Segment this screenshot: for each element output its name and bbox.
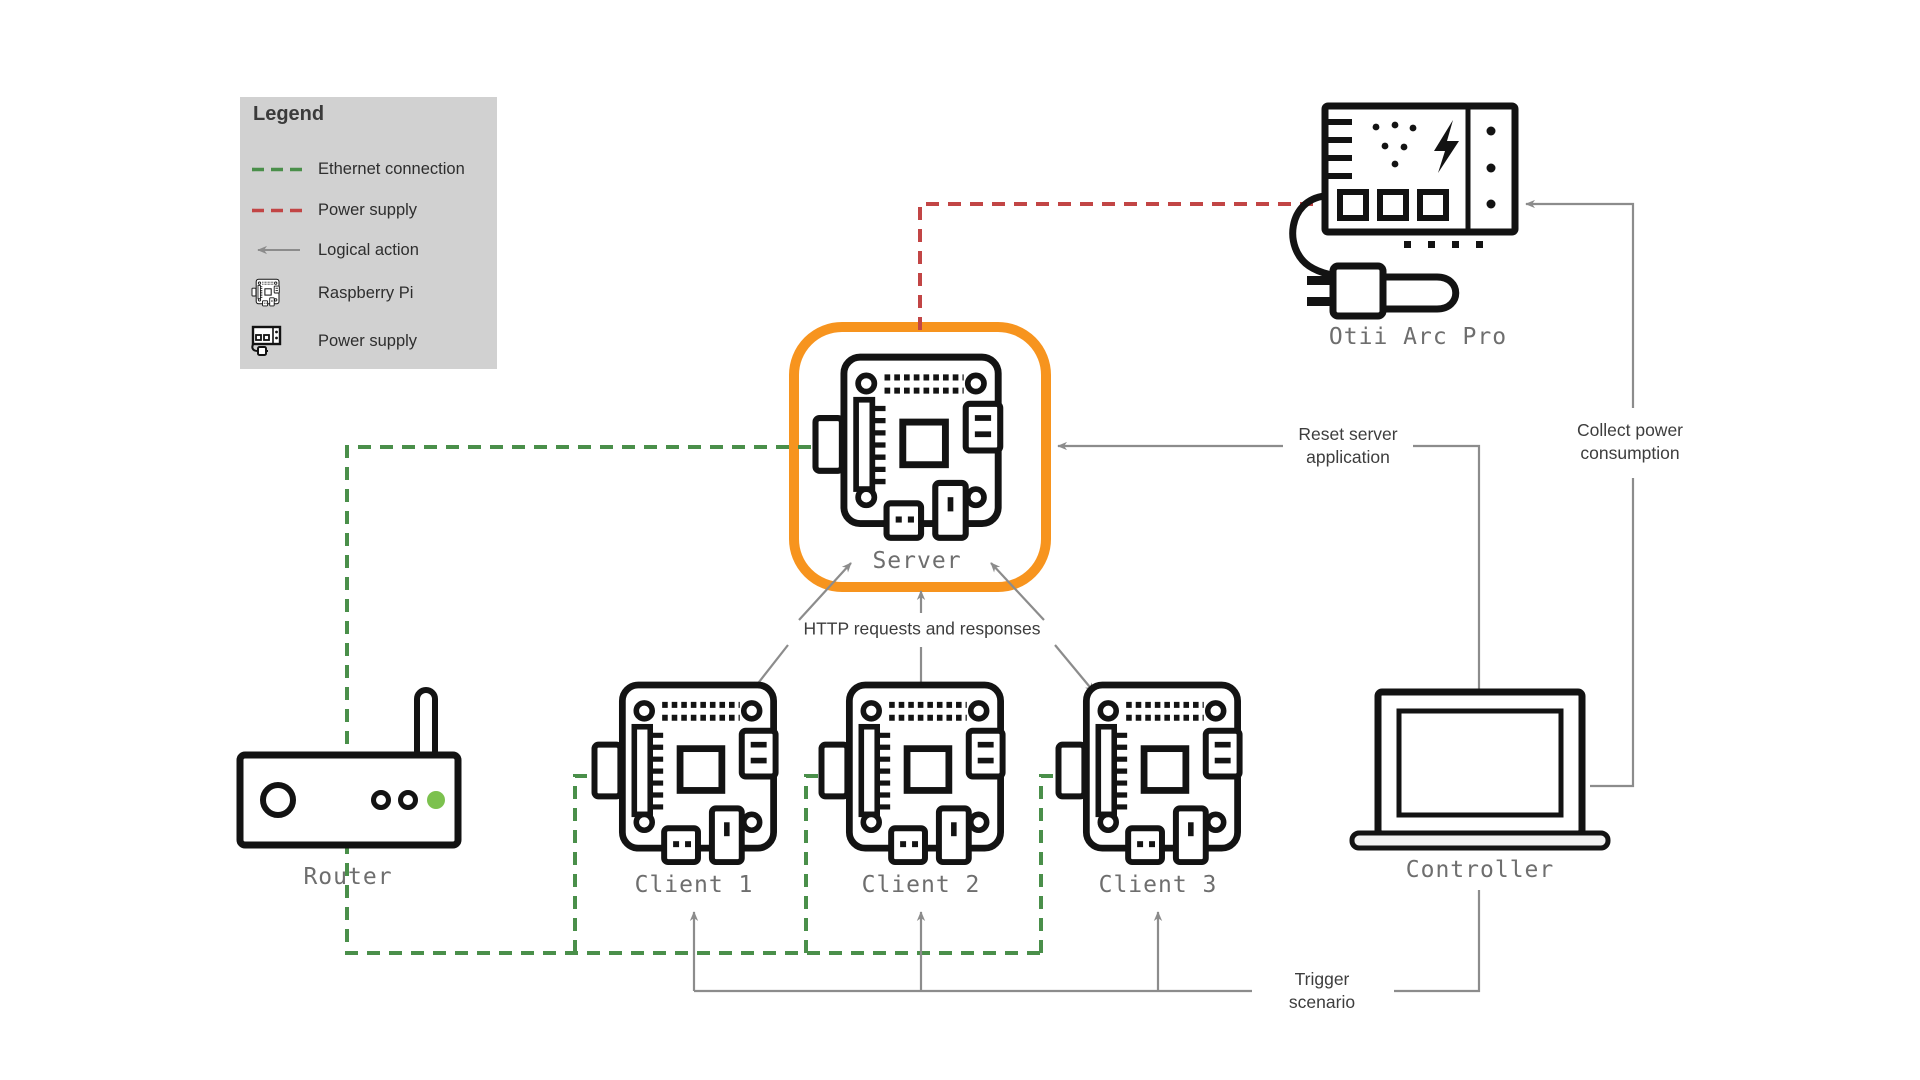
- client1-label: Client 1: [635, 872, 754, 898]
- trigger-annotation-line1: Trigger: [1289, 968, 1355, 991]
- client3-label: Client 3: [1099, 872, 1218, 898]
- raspberry-pi-mini-icon: [250, 277, 312, 309]
- legend: Legend Ethernet connection Power supply …: [240, 97, 497, 369]
- legend-title: Legend: [253, 103, 324, 126]
- trigger-scenario-annotation: Trigger scenario: [1289, 968, 1355, 1014]
- diagram-canvas: Legend Ethernet connection Power supply …: [0, 0, 1920, 1080]
- red-dashed-line-swatch: [250, 206, 312, 215]
- legend-label-ethernet: Ethernet connection: [318, 160, 465, 179]
- legend-label-raspberry-pi: Raspberry Pi: [318, 284, 413, 303]
- collect-line-upper: [1526, 204, 1633, 408]
- http-requests-annotation: HTTP requests and responses: [803, 617, 1040, 640]
- server-label: Server: [872, 548, 961, 574]
- legend-item-ethernet: Ethernet connection: [250, 153, 465, 185]
- legend-label-power-supply: Power supply: [318, 332, 417, 351]
- router-led: [427, 791, 445, 809]
- controller-laptop-icon: [1352, 692, 1608, 848]
- otii-label: Otii Arc Pro: [1329, 324, 1507, 350]
- legend-item-power-supply: Power supply: [250, 325, 417, 357]
- controller-label: Controller: [1406, 857, 1554, 883]
- legend-item-raspberry-pi: Raspberry Pi: [250, 277, 413, 309]
- ethernet-branch-client3: [1041, 776, 1077, 953]
- otii-plug: [1333, 266, 1383, 316]
- otii-arc-pro-icon: [1293, 106, 1515, 316]
- collect-annotation-line2: consumption: [1577, 442, 1683, 465]
- legend-item-logical: Logical action: [250, 234, 419, 266]
- client3-raspberry-pi-icon: [1059, 685, 1240, 862]
- server-raspberry-pi-icon: [816, 357, 1001, 538]
- reset-line-elbow: [1413, 446, 1479, 690]
- reset-annotation-line2: application: [1298, 446, 1397, 469]
- legend-label-power-line: Power supply: [318, 201, 417, 220]
- trigger-annotation-line2: scenario: [1289, 991, 1355, 1014]
- router-label: Router: [303, 864, 392, 890]
- collect-power-annotation: Collect power consumption: [1577, 419, 1683, 465]
- collect-line-lower: [1590, 478, 1633, 786]
- client2-raspberry-pi-icon: [822, 685, 1003, 862]
- power-line-otii-server: [920, 204, 1318, 330]
- ethernet-branch-client2: [806, 776, 842, 953]
- reset-server-annotation: Reset server application: [1298, 423, 1397, 469]
- client2-label: Client 2: [862, 872, 981, 898]
- collect-annotation-line1: Collect power: [1577, 419, 1683, 442]
- trigger-line-right: [1394, 890, 1479, 991]
- legend-item-power-line: Power supply: [250, 194, 417, 226]
- ethernet-branch-client1: [575, 776, 601, 953]
- power-supply-mini-icon: [250, 325, 312, 357]
- http-arrow-down-right: [1055, 645, 1094, 692]
- reset-annotation-line1: Reset server: [1298, 423, 1397, 446]
- green-dashed-line-swatch: [250, 165, 312, 174]
- client1-raspberry-pi-icon: [595, 685, 776, 862]
- legend-label-logical: Logical action: [318, 241, 419, 260]
- gray-arrow-swatch: [250, 245, 312, 255]
